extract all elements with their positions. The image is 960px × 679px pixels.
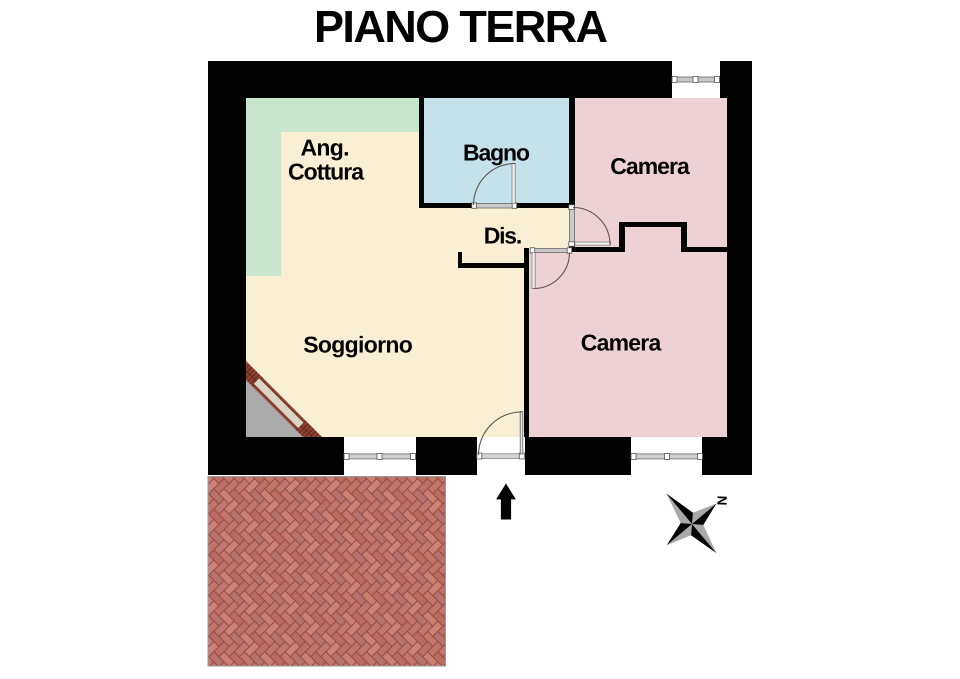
svg-text:Camera: Camera (581, 330, 662, 356)
svg-text:N: N (714, 495, 729, 505)
svg-text:Ang.: Ang. (301, 135, 350, 161)
svg-text:Bagno: Bagno (463, 140, 530, 166)
svg-text:Camera: Camera (610, 153, 690, 179)
svg-text:Dis.: Dis. (484, 223, 523, 249)
svg-text:PIANO TERRA: PIANO TERRA (314, 1, 608, 52)
svg-text:Cottura: Cottura (288, 159, 364, 185)
svg-text:Soggiorno: Soggiorno (303, 331, 413, 357)
